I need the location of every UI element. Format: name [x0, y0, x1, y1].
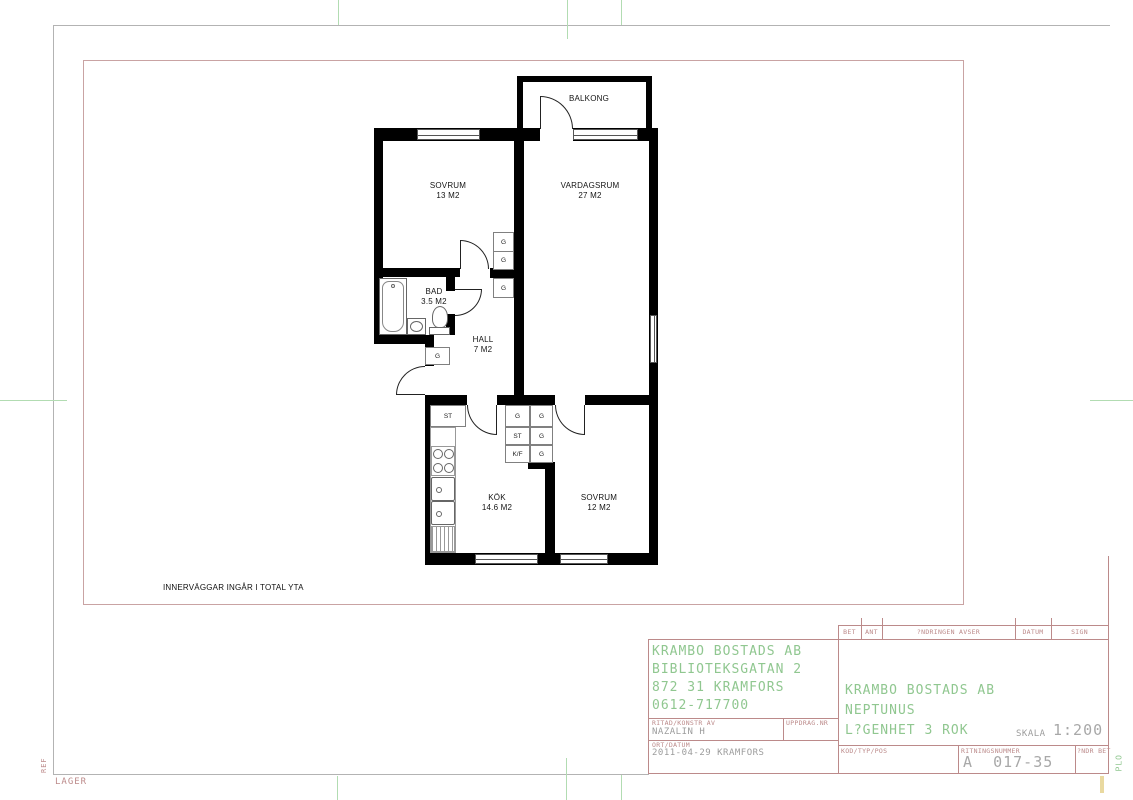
fold-mark [337, 776, 338, 800]
field-label-uppdrag: UPPDRAG.NR [786, 719, 828, 727]
bathtub [379, 278, 407, 335]
page-border-bottom [53, 774, 649, 775]
wall [528, 462, 555, 469]
sink-drain [436, 487, 442, 493]
window [560, 554, 608, 564]
wall [425, 553, 658, 565]
room-area: 27 M2 [561, 191, 620, 201]
closet-st: ST [430, 405, 466, 427]
titleblock-line [1075, 745, 1076, 774]
rev-col-sign: SIGN [1051, 628, 1108, 636]
titleblock-line [838, 625, 1108, 626]
drawing-note: INNERVÄGGAR INGÅR I TOTAL YTA [163, 583, 304, 592]
fold-mark [621, 0, 622, 25]
room-name: BAD [421, 287, 447, 297]
company-name: KRAMBO BOSTADS AB [652, 643, 802, 661]
toilet-tank [429, 327, 450, 335]
window [417, 129, 480, 140]
window [573, 129, 638, 140]
closet-label: G [515, 413, 520, 420]
field-value-ort: 2011-04-29 KRAMFORS [652, 748, 764, 758]
field-label-ritad: RITAD/KONSTR AV [652, 719, 715, 727]
company-city: 872 31 KRAMFORS [652, 679, 784, 697]
wall [514, 140, 524, 395]
closet-label: G [435, 353, 440, 360]
bathtub-inner [382, 281, 404, 332]
window [475, 554, 538, 564]
burner [444, 449, 454, 459]
room-name: KÖK [482, 493, 512, 503]
closet-label: G [539, 433, 544, 440]
field-value-skala: 1:200 [1053, 721, 1103, 739]
closet-g: G [493, 278, 514, 298]
room-name: VARDAGSRUM [561, 181, 620, 191]
project-name: NEPTUNUS [845, 702, 916, 720]
titleblock-line [648, 639, 1108, 640]
titleblock-line [648, 773, 1108, 774]
closet-g: G [530, 427, 553, 445]
sink-basin [410, 321, 423, 332]
room-label-sovrum1: SOVRUM 13 M2 [430, 181, 466, 201]
sink-drain [436, 511, 442, 517]
door-opening [555, 395, 585, 405]
closet-g: G [493, 232, 514, 252]
room-label-hall: HALL 7 M2 [473, 335, 494, 355]
stove [431, 446, 455, 476]
titleblock-line [1108, 556, 1109, 774]
project-company: KRAMBO BOSTADS AB [845, 682, 995, 700]
closet-label: ST [444, 413, 452, 420]
closet-g: G [530, 445, 553, 463]
closet-st: ST [505, 427, 530, 445]
room-area: 3.5 M2 [421, 297, 447, 307]
closet-g: G [493, 251, 514, 270]
margin-label-lager: LAGER [55, 777, 87, 787]
fold-mark [0, 400, 67, 401]
wall [646, 76, 652, 128]
closet-label: K/F [512, 451, 522, 458]
page-border-top [53, 25, 1110, 26]
burner [433, 463, 443, 473]
project-type: L?GENHET 3 ROK [845, 722, 969, 740]
wall [374, 335, 434, 344]
closet-label: G [539, 451, 544, 458]
closet-g: G [530, 405, 553, 427]
plot-mark [1100, 776, 1104, 793]
room-area: 14.6 M2 [482, 503, 512, 513]
margin-label-ref: REF [40, 751, 48, 773]
field-label-skala: SKALA [1016, 729, 1046, 739]
room-label-kok: KÖK 14.6 M2 [482, 493, 512, 513]
closet-kf: K/F [505, 445, 530, 463]
wall [545, 462, 555, 553]
room-label-vardagsrum: VARDAGSRUM 27 M2 [561, 181, 620, 201]
door-opening [467, 395, 497, 405]
fold-mark [338, 0, 339, 25]
kitchen-sink [431, 477, 455, 501]
room-area: 13 M2 [430, 191, 466, 201]
titleblock-line [958, 745, 959, 774]
titleblock-line [783, 718, 784, 740]
rev-col-datum: DATUM [1015, 628, 1051, 636]
closet-g: G [505, 405, 530, 427]
fold-mark [1090, 400, 1133, 401]
rev-col-ant: ANT [861, 628, 882, 636]
rev-col-bet: BET [838, 628, 861, 636]
field-value-ritningsnummer: A 017-35 [963, 753, 1053, 771]
room-name: SOVRUM [430, 181, 466, 191]
company-street: BIBLIOTEKSGATAN 2 [652, 661, 802, 679]
drawing-page: G G G G ST G ST K/F G G G BALKONG SOVRUM… [0, 0, 1133, 800]
door-opening [460, 268, 490, 278]
drainboard [431, 526, 455, 552]
fold-mark [621, 775, 622, 800]
drain [391, 284, 395, 288]
closet-label: ST [513, 433, 521, 440]
room-label-sovrum2: SOVRUM 12 M2 [581, 493, 617, 513]
titleblock-line [838, 625, 839, 774]
wall [425, 395, 658, 405]
field-label-kod: KOD/TYP/POS [841, 747, 887, 755]
room-area: 12 M2 [581, 503, 617, 513]
room-name: HALL [473, 335, 494, 345]
titleblock-line [648, 639, 649, 774]
field-label-andr-bet: ?NDR BET [1077, 747, 1111, 755]
room-name: SOVRUM [581, 493, 617, 503]
titleblock-line [838, 745, 1108, 746]
closet-label: G [501, 257, 506, 264]
kitchen-sink [431, 501, 455, 525]
fold-mark [567, 0, 568, 39]
room-label-balkong: BALKONG [569, 94, 609, 104]
wall [374, 268, 460, 277]
closet-label: G [539, 413, 544, 420]
fold-mark [566, 758, 567, 800]
room-label-bad: BAD 3.5 M2 [421, 287, 447, 307]
wall [446, 277, 455, 291]
company-phone: 0612-717700 [652, 697, 749, 715]
closet-label: G [501, 239, 506, 246]
rev-col-andringen: ?NDRINGEN AVSER [882, 628, 1015, 636]
window [650, 315, 657, 363]
wall [517, 76, 652, 82]
closet-g: G [425, 347, 450, 365]
wall [517, 76, 523, 128]
margin-label-plo: PLO [1115, 748, 1124, 772]
room-area: 7 M2 [473, 345, 494, 355]
burner [444, 463, 454, 473]
bathroom-sink [407, 318, 426, 335]
room-name: BALKONG [569, 94, 609, 104]
field-value-ritad: NAZALIN H [652, 727, 705, 737]
closet-label: G [501, 285, 506, 292]
burner [433, 449, 443, 459]
door-opening [540, 128, 573, 141]
toilet-bowl [432, 306, 448, 328]
